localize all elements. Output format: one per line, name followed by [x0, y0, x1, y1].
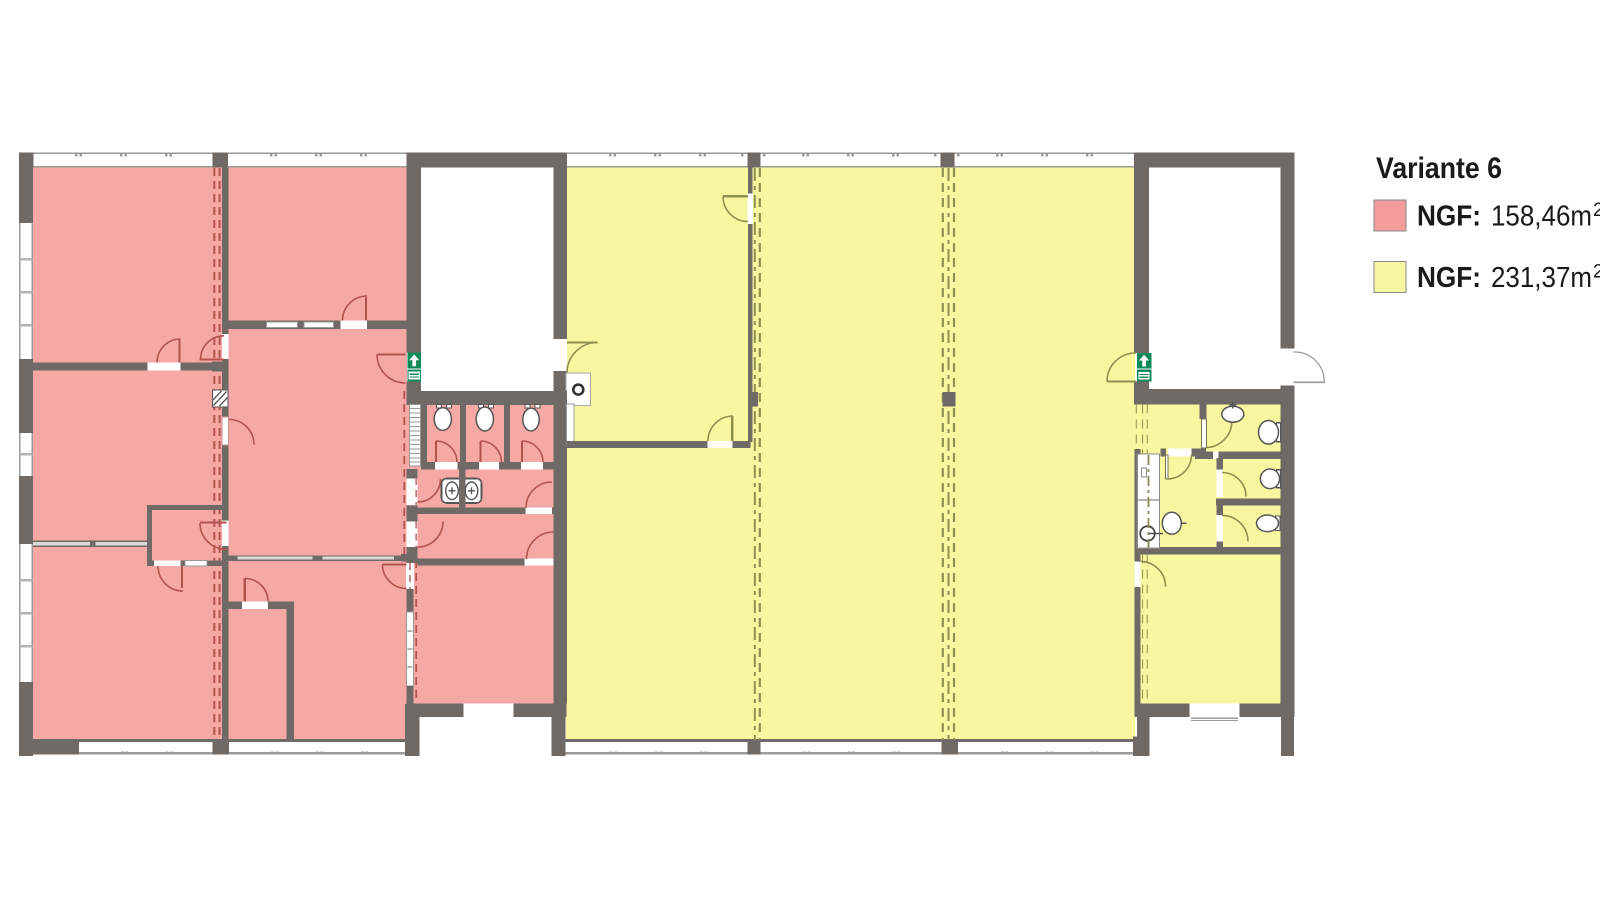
svg-text:Variante 6: Variante 6 [1376, 152, 1502, 185]
svg-text:231,37m: 231,37m [1491, 262, 1592, 294]
svg-text:NGF:: NGF: [1417, 262, 1481, 294]
svg-text:2: 2 [1593, 262, 1600, 283]
svg-text:158,46m: 158,46m [1491, 201, 1592, 233]
svg-text:2: 2 [1593, 200, 1600, 221]
svg-text:NGF:: NGF: [1417, 201, 1481, 233]
